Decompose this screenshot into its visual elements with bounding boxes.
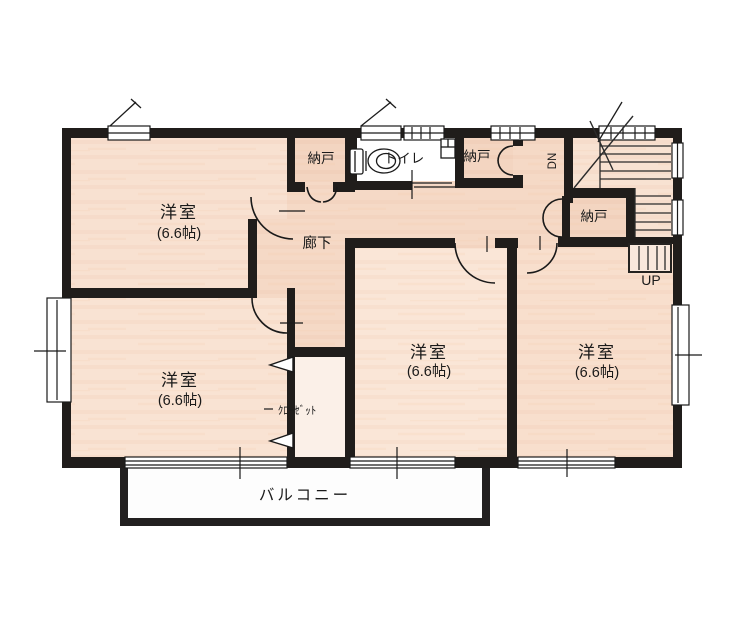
window-right-stairs-upper — [672, 143, 683, 178]
label-stairs-down: DN — [547, 153, 559, 170]
window-top-stairs — [599, 126, 655, 140]
window-top-storage-ne — [491, 126, 535, 140]
floorplan-page: 洋室 (6.6帖) 洋室 (6.6帖) 洋室 (6.6帖) 洋室 (6.6帖) … — [0, 0, 730, 622]
label-closet: ｸﾛｰｾﾞｯﾄ — [278, 404, 317, 417]
window-right-stairs-lower — [672, 200, 683, 235]
window-top-toilet-left — [361, 126, 401, 140]
label-bedroom-nw-size: (6.6帖) — [157, 225, 201, 242]
label-storage-nw: 納戸 — [308, 151, 335, 166]
label-hallway: 廊下 — [303, 235, 332, 252]
window-top-toilet-right — [404, 126, 444, 140]
label-bedroom-center-size: (6.6帖) — [407, 363, 451, 380]
label-balcony: バルコニー — [259, 487, 351, 504]
label-storage-ne: 納戸 — [464, 149, 491, 164]
label-bedroom-nw: 洋室 — [160, 203, 198, 222]
label-bedroom-center: 洋室 — [410, 343, 448, 362]
floorplan-drawing: 洋室 (6.6帖) 洋室 (6.6帖) 洋室 (6.6帖) 洋室 (6.6帖) … — [0, 0, 730, 622]
label-bedroom-sw-size: (6.6帖) — [158, 392, 202, 409]
label-bedroom-se-size: (6.6帖) — [575, 364, 619, 381]
label-stairs-up: UP — [641, 272, 660, 288]
label-bedroom-se: 洋室 — [578, 343, 616, 362]
label-bedroom-sw: 洋室 — [161, 371, 199, 390]
label-storage-stair: 納戸 — [581, 209, 608, 224]
washbasin-fixture — [441, 139, 455, 158]
label-toilet: トイレ — [384, 151, 425, 166]
window-top-nw — [108, 126, 150, 140]
